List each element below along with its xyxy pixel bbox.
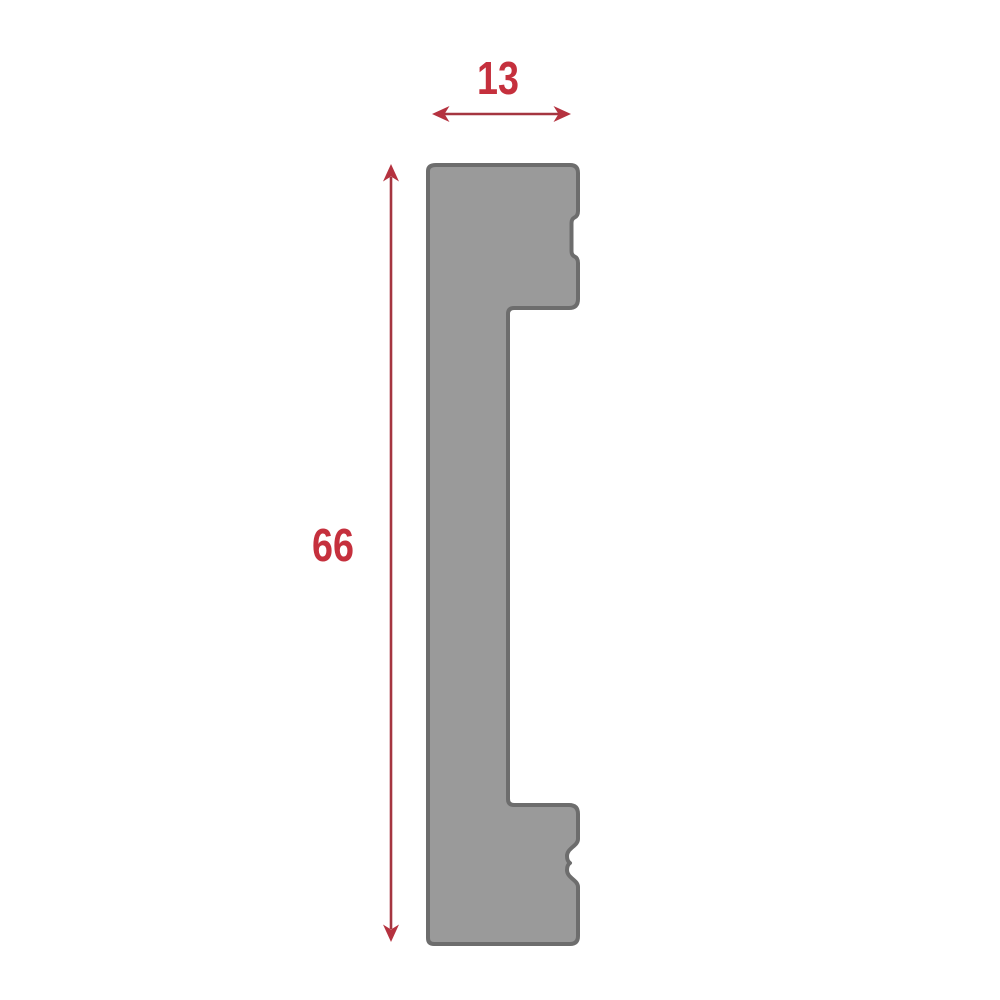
profile-shape — [428, 165, 578, 944]
width-dimension-label: 13 — [477, 52, 519, 103]
height-dimension: 66 — [312, 164, 399, 942]
width-dimension: 13 — [432, 52, 571, 122]
profile-diagram: 13 66 — [0, 0, 1000, 1000]
diagram-canvas: 13 66 — [0, 0, 1000, 1000]
height-dimension-label: 66 — [312, 519, 354, 570]
